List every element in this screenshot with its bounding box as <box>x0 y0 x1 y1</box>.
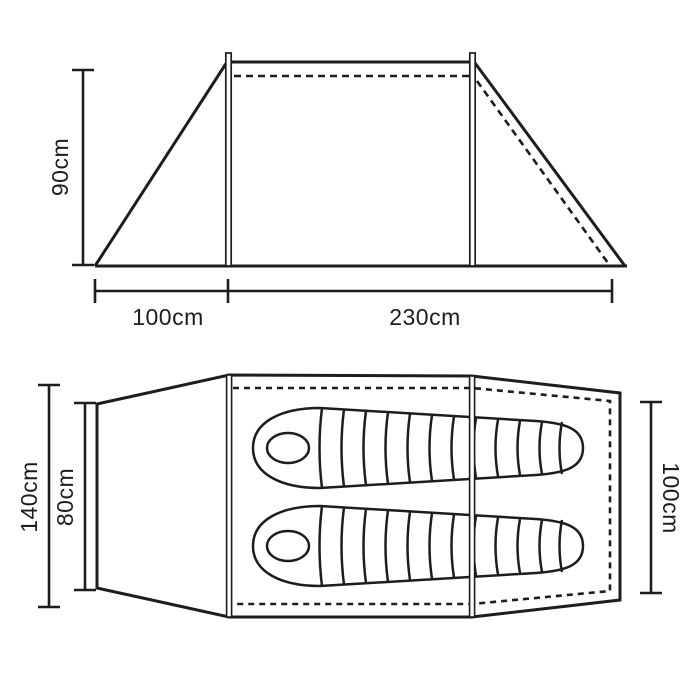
side-view <box>72 53 627 303</box>
diagram-canvas: 90cm 100cm 230cm <box>0 0 700 700</box>
tent-dimension-diagram: 90cm 100cm 230cm <box>0 0 700 700</box>
sleeping-area-length-label: 230cm <box>389 304 461 330</box>
front-hoop-pole <box>227 375 232 617</box>
front-slope-line <box>95 62 227 266</box>
outer-width-label: 140cm <box>16 461 42 533</box>
inner-length-label: 100cm <box>658 462 684 534</box>
sleeping-bag-1-outline <box>253 408 583 488</box>
rear-hoop-pole <box>470 376 475 617</box>
floor-plan-view <box>38 375 662 617</box>
pole-height-label: 90cm <box>47 138 73 196</box>
height-dimension <box>72 70 94 265</box>
rear-slope-line <box>475 63 625 266</box>
porch-length-label: 100cm <box>132 304 204 330</box>
sleeping-bag-1 <box>253 408 583 488</box>
entrance-width-label: 80cm <box>52 468 78 526</box>
sleeping-bag-2-outline <box>253 506 583 586</box>
inner-rear-slope-dashed-line <box>477 81 608 263</box>
length-dimension <box>95 279 612 303</box>
rear-pole <box>470 53 475 266</box>
front-pole <box>226 53 231 266</box>
sleeping-bag-2 <box>253 506 583 586</box>
